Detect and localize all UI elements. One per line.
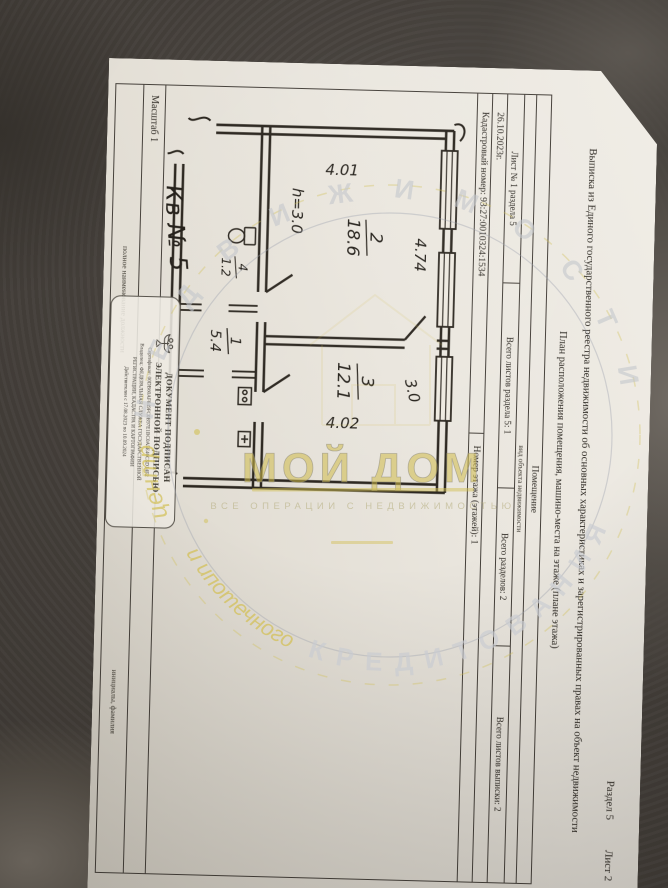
room-4-label: 4 1.2 [218,256,250,279]
floor-plan: 4.01 4.74 3.0 4.02 h=3.0 2 18.6 3 [158,94,469,514]
document-title: Выписка из Единого государственного реес… [569,148,599,833]
room-2-area: 18.6 [342,218,363,257]
windows [435,151,458,421]
wall-room-divider [265,312,450,349]
height-note: h=3.0 [288,188,307,234]
wall-kitchen [178,370,256,378]
plan-drawing-area: 4.01 4.74 3.0 4.02 h=3.0 2 18.6 3 [145,84,478,882]
sink-icon [238,431,250,446]
dim-4-74: 4.74 [411,238,430,272]
room-2-number: 2 [365,232,385,243]
document-subtitle: План расположения помещения, машино-мест… [549,331,568,649]
apartment-number-label: Кв № 5 [158,184,193,273]
egrn-extract-sheet: Раздел 5Лист 2 Выписка из Единого госуда… [87,58,659,888]
dim-3-0: 3.0 [401,377,424,404]
room-1-area: 5.4 [206,329,223,352]
corner-labels: Раздел 5Лист 2 [602,780,617,881]
dim-4-01: 4.01 [325,161,359,180]
room-3-number: 3 [357,376,377,387]
stove-icon [238,387,251,404]
sheet-label: Лист 2 [602,850,615,882]
digital-signature-stamp: ДОКУМЕНТ ПОДПИСАН ЭЛЕКТРОННОЙ ПОДПИСЬЮ С… [105,295,181,529]
room-3-label: 3 12.1 [332,362,377,401]
room-1-number: 1 [227,337,243,346]
wall-wc [180,304,258,312]
room-2-label: 2 18.6 [342,218,386,257]
wall-strip [253,126,296,489]
coat-of-arms-icon [155,332,176,355]
toilet-icon [228,227,255,245]
dim-4-02: 4.02 [326,414,360,433]
photo-of-document: Раздел 5Лист 2 Выписка из Единого госуда… [0,0,668,888]
room-1-label: 1 5.4 [206,328,243,355]
room-4-number: 4 [236,264,250,272]
section-label: Раздел 5 [603,780,616,820]
wall-right [183,478,445,493]
room-4-area: 1.2 [218,257,232,276]
name-caption: инициалы, фамилия [107,629,120,774]
room-3-area: 12.1 [332,362,353,400]
wall-left [216,125,454,139]
